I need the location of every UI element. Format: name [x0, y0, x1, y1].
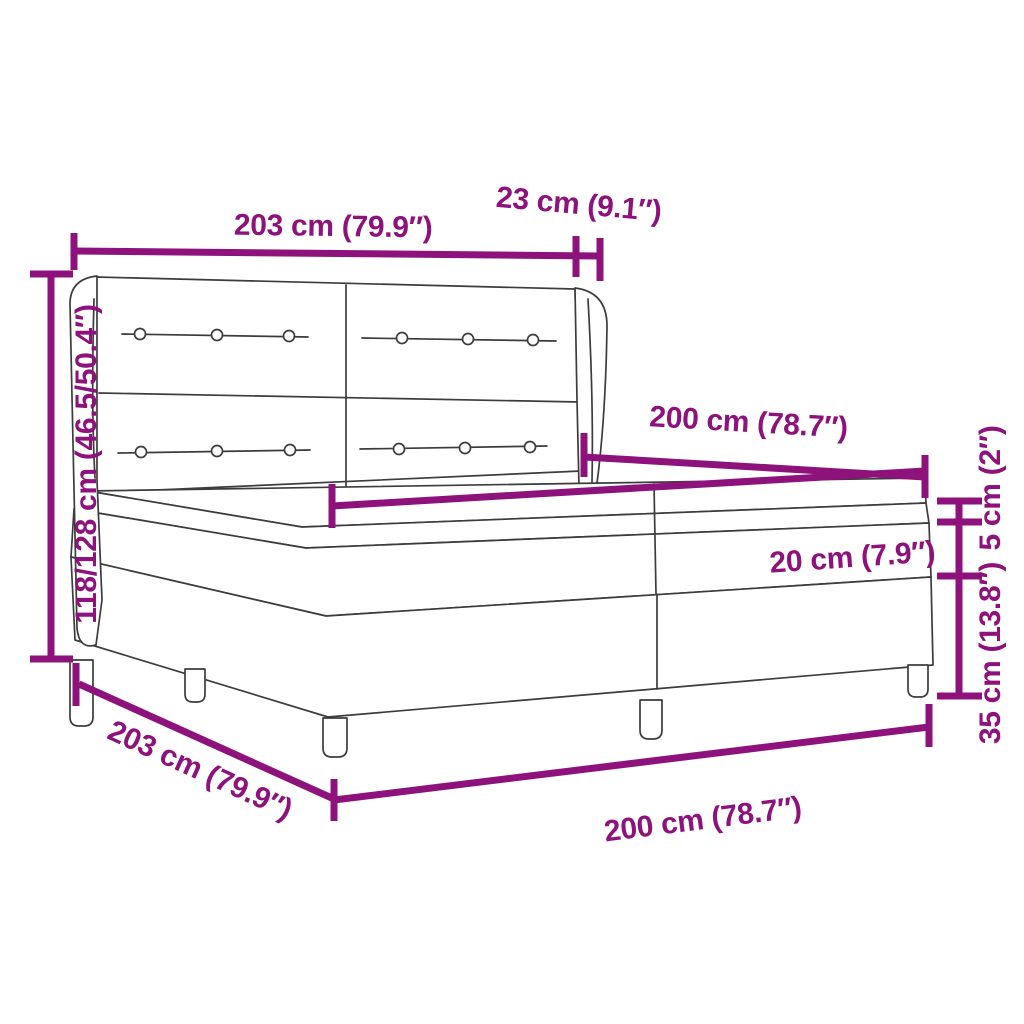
tufting-button [285, 445, 296, 456]
dim-total-height-line [30, 274, 73, 659]
tufting-button [463, 334, 474, 345]
tufting-button [528, 335, 539, 346]
dim-bed-length-top-label: 200 cm (78.7″) [648, 400, 848, 444]
tufting-button [460, 443, 471, 454]
bed-leg [323, 718, 347, 757]
tufting-button [212, 446, 223, 457]
tufting-button [135, 329, 146, 340]
dim-total-height-label: 118/128 cm (46.5/50.4″) [70, 304, 103, 623]
headboard-panel [90, 277, 581, 493]
dim-base-length-label: 200 cm (78.7″) [602, 791, 803, 849]
bed-body [71, 478, 933, 757]
dim-headboard-width-label: 203 cm (79.9″) [234, 209, 433, 245]
tufting-button [394, 444, 405, 455]
bed-leg [640, 700, 662, 739]
bed-leg [908, 665, 928, 697]
bed-dimension-diagram: 200 cm (78.7″) [0, 0, 1024, 1024]
tufting-button [212, 330, 223, 341]
dim-topper-height-label: 5 cm (2″) [974, 425, 1007, 550]
dim-wing-depth-label: 23 cm (9.1″) [495, 181, 663, 228]
tufting-button [525, 442, 536, 453]
tufting-button [284, 331, 295, 342]
tufting-button [397, 333, 408, 344]
dim-base-length-line [334, 704, 929, 800]
diagram-canvas: 200 cm (78.7″) [0, 0, 1024, 1024]
dim-base-height-label: 35 cm (13.8″) [974, 562, 1007, 744]
bed-leg [185, 669, 205, 702]
tufting-button [136, 447, 147, 458]
headboard [90, 277, 607, 498]
